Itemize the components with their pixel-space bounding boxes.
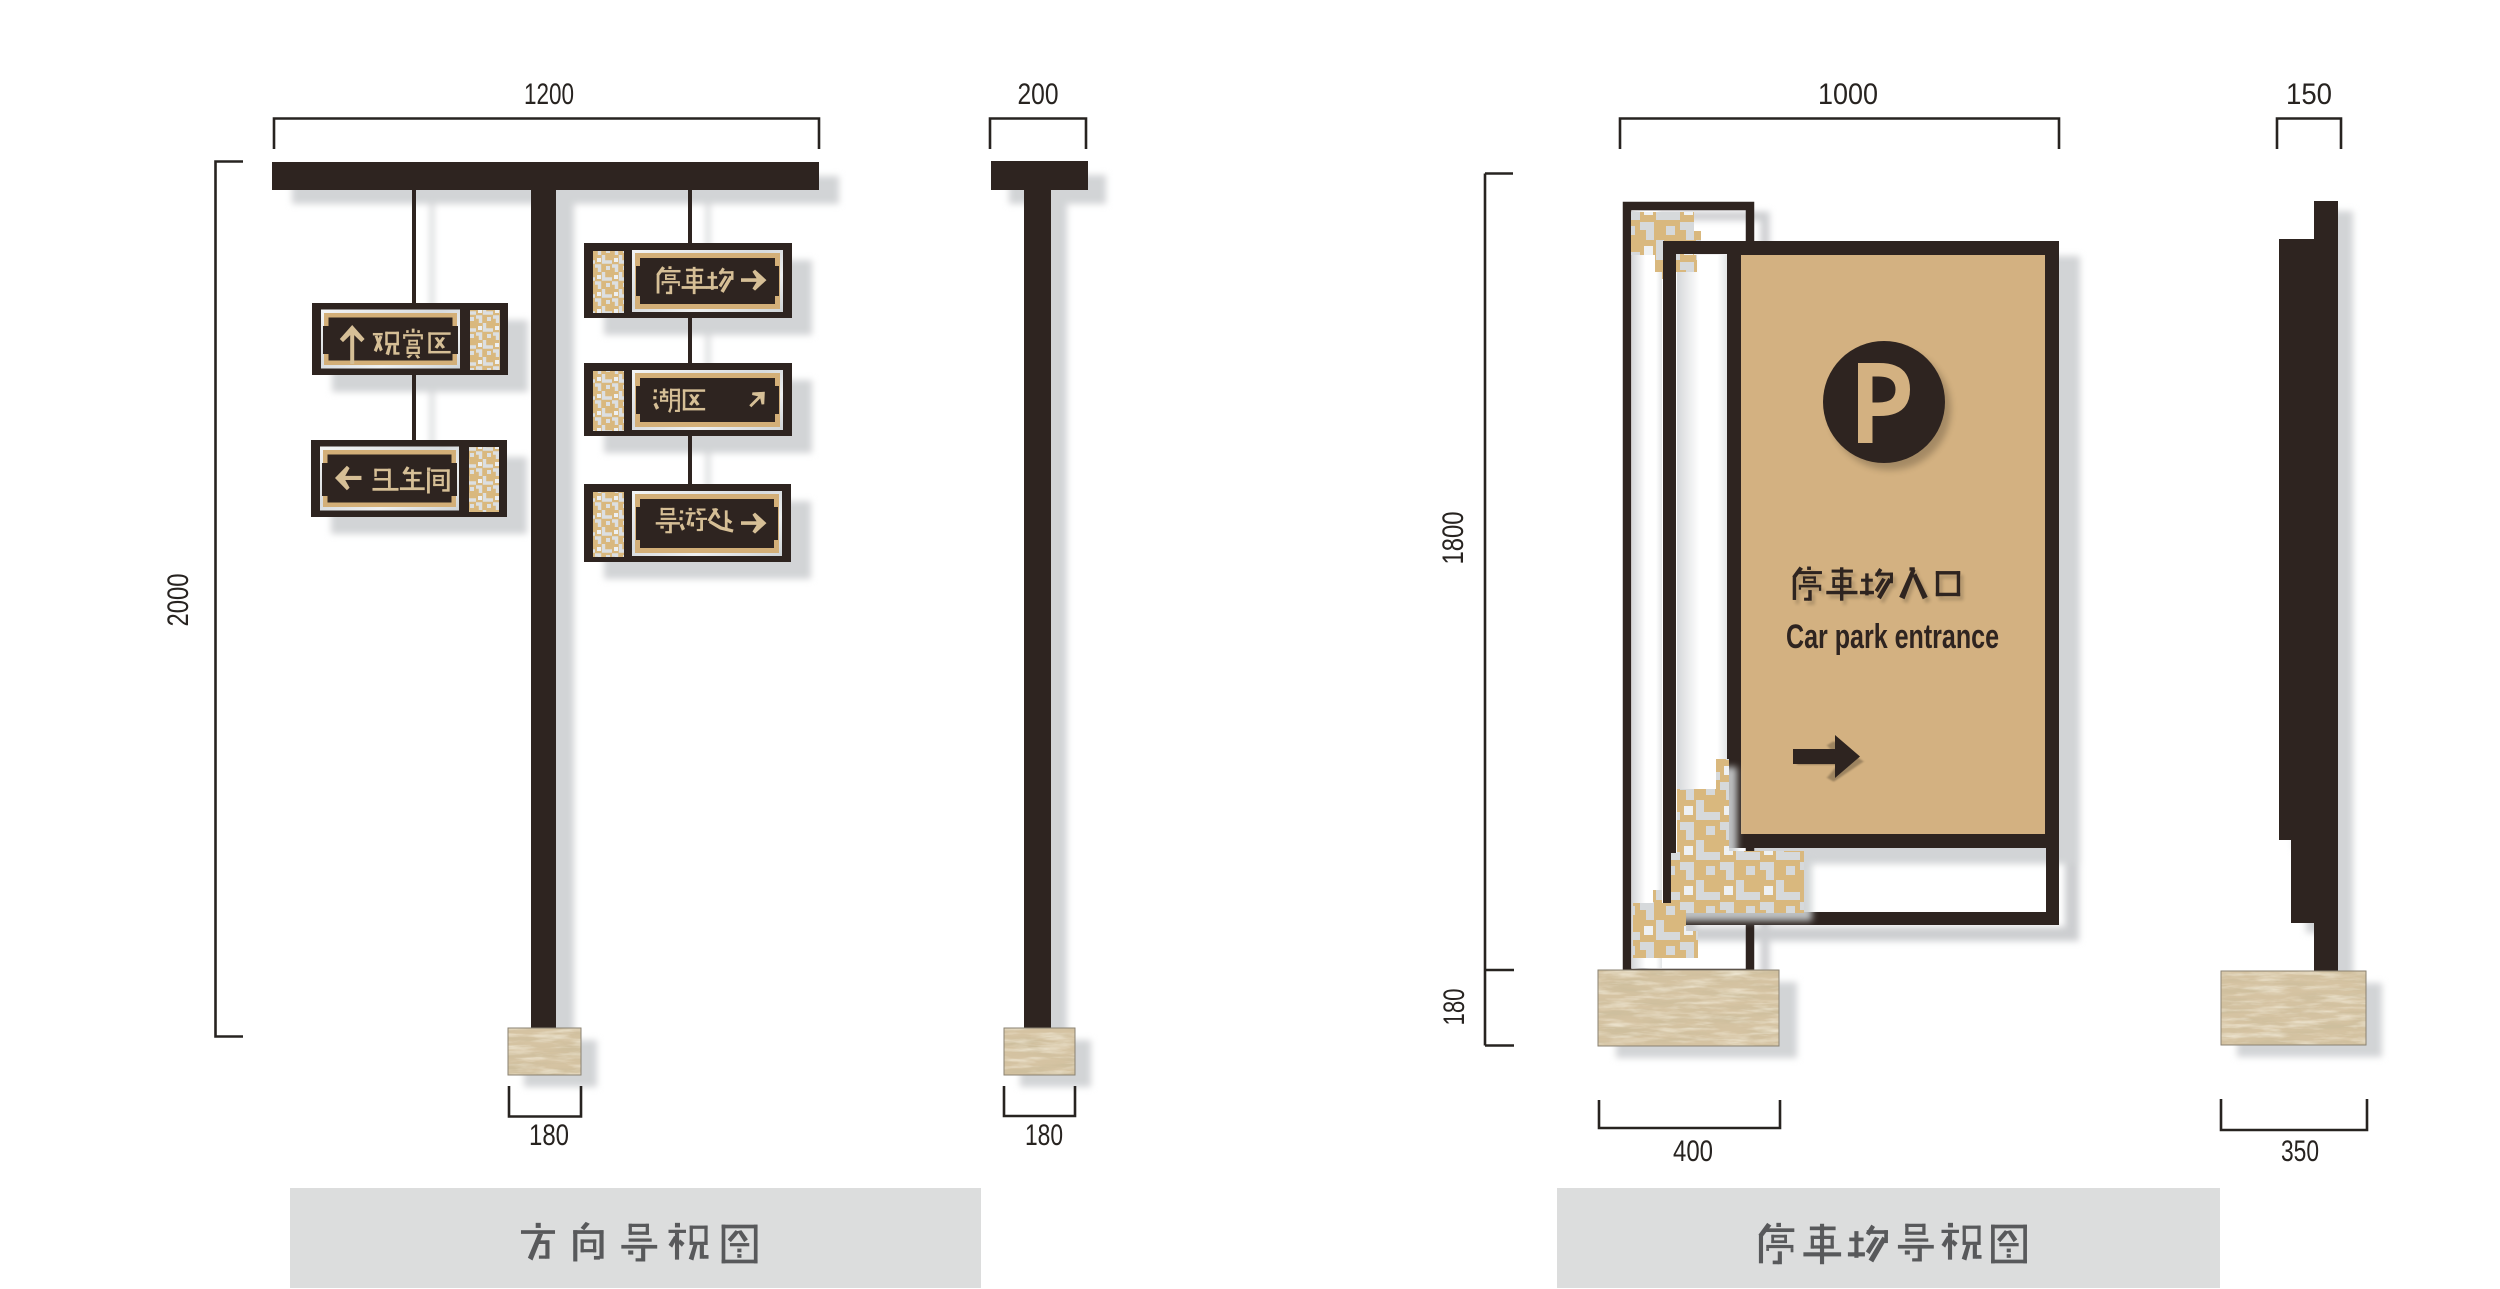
svg-text:2000: 2000 [162,574,195,627]
svg-text:1800: 1800 [1437,512,1470,565]
svg-text:200: 200 [1018,78,1059,111]
svg-text:150: 150 [2286,78,2332,111]
svg-text:180: 180 [1025,1119,1063,1152]
svg-text:180: 180 [1438,989,1471,1026]
svg-text:1200: 1200 [524,78,574,111]
svg-text:400: 400 [1673,1135,1713,1168]
svg-text:350: 350 [2281,1135,2319,1168]
svg-text:180: 180 [529,1119,569,1152]
svg-text:Car park entrance: Car park entrance [1786,618,1999,656]
svg-text:1000: 1000 [1818,78,1878,111]
